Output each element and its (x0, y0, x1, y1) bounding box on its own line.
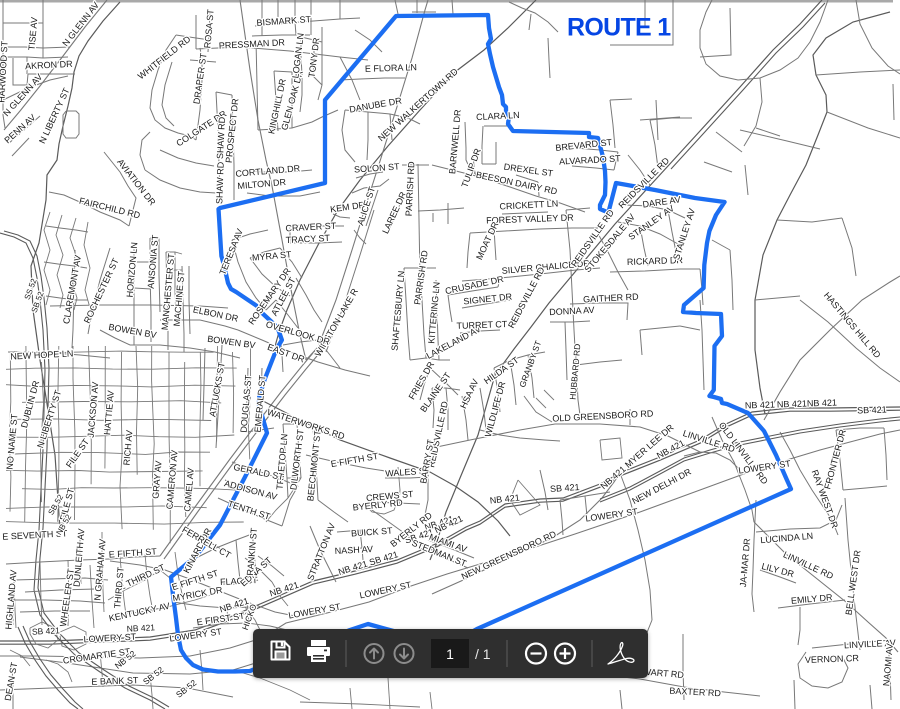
svg-text:NB 421: NB 421 (777, 398, 807, 409)
svg-text:TURRET CT: TURRET CT (456, 319, 508, 331)
svg-text:VERNON CR: VERNON CR (805, 653, 860, 665)
svg-text:SHAW RD: SHAW RD (214, 161, 225, 204)
svg-text:ROUTE 1: ROUTE 1 (567, 14, 671, 42)
svg-text:/ 1: / 1 (475, 646, 491, 662)
svg-text:SB 421: SB 421 (32, 625, 61, 636)
svg-text:NASH AV: NASH AV (334, 544, 373, 556)
svg-text:SB 421: SB 421 (857, 404, 887, 415)
svg-text:E BANK ST: E BANK ST (91, 675, 139, 687)
svg-text:NB 421: NB 421 (745, 399, 775, 410)
svg-text:NB 421: NB 421 (807, 397, 837, 408)
svg-text:1: 1 (446, 646, 454, 662)
svg-text:SB 421: SB 421 (550, 482, 580, 494)
svg-text:NB 421: NB 421 (126, 622, 155, 633)
svg-text:E FLORA LN: E FLORA LN (365, 62, 417, 74)
